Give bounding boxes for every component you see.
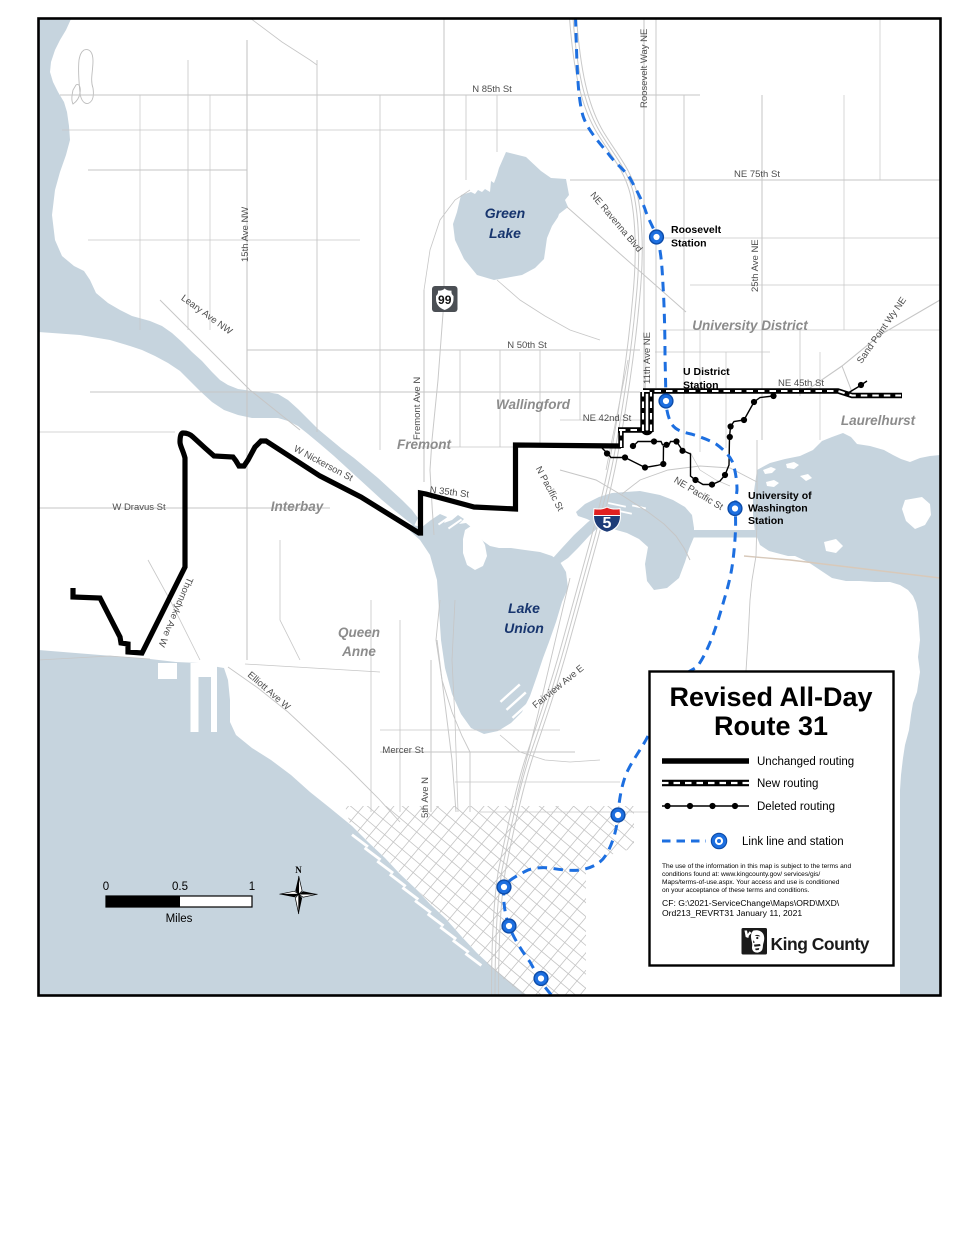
svg-text:Roosevelt Way NE: Roosevelt Way NE bbox=[639, 29, 650, 108]
svg-text:Unchanged routing: Unchanged routing bbox=[757, 756, 854, 768]
svg-text:Ord213_REVRT31 January 11, 2: Ord213_REVRT31 January 11, 2021 bbox=[662, 908, 802, 918]
svg-text:King County: King County bbox=[771, 934, 870, 954]
svg-text:NE 75th St: NE 75th St bbox=[734, 169, 780, 180]
svg-text:Station: Station bbox=[748, 515, 784, 527]
svg-text:NE 45th St: NE 45th St bbox=[778, 378, 824, 389]
svg-text:Station: Station bbox=[671, 238, 707, 250]
svg-text:5: 5 bbox=[603, 515, 612, 532]
svg-text:1: 1 bbox=[249, 881, 255, 893]
svg-text:The use of the information in: The use of the information in this map i… bbox=[662, 863, 851, 870]
svg-text:11th Ave NE: 11th Ave NE bbox=[642, 332, 653, 384]
svg-text:Link line and station: Link line and station bbox=[742, 836, 844, 848]
svg-text:NE 42nd St: NE 42nd St bbox=[583, 413, 632, 424]
svg-text:N 85th St: N 85th St bbox=[472, 84, 512, 95]
svg-text:0.5: 0.5 bbox=[172, 881, 188, 893]
svg-text:99: 99 bbox=[438, 293, 452, 307]
svg-text:New routing: New routing bbox=[757, 778, 818, 790]
svg-text:Queen: Queen bbox=[338, 625, 380, 640]
svg-text:Roosevelt: Roosevelt bbox=[671, 224, 722, 236]
svg-text:Station: Station bbox=[683, 380, 719, 392]
svg-text:CF: G:\2021-ServiceChange\Map: CF: G:\2021-ServiceChange\Maps\ORD\MXD\ bbox=[662, 898, 840, 908]
svg-text:Laurelhurst: Laurelhurst bbox=[841, 413, 916, 428]
svg-text:conditions found at: www.king: conditions found at: www.kingcounty.gov/… bbox=[662, 871, 820, 878]
svg-text:on your acceptance of these te: on your acceptance of these terms and co… bbox=[662, 887, 810, 894]
svg-text:Miles: Miles bbox=[166, 913, 193, 925]
svg-text:5th Ave N: 5th Ave N bbox=[420, 777, 431, 818]
svg-text:Lake: Lake bbox=[508, 600, 540, 616]
svg-text:N 50th St: N 50th St bbox=[507, 340, 547, 351]
svg-text:Fremont: Fremont bbox=[397, 437, 452, 452]
svg-text:N: N bbox=[295, 865, 302, 875]
svg-text:University District: University District bbox=[692, 318, 808, 333]
svg-text:Green: Green bbox=[485, 205, 525, 221]
svg-text:0: 0 bbox=[103, 881, 109, 893]
svg-text:Washington: Washington bbox=[748, 503, 808, 515]
svg-text:Union: Union bbox=[504, 620, 544, 636]
svg-text:Route 31: Route 31 bbox=[714, 711, 828, 741]
svg-text:Mercer St: Mercer St bbox=[382, 745, 424, 756]
svg-text:Maps/terms-of-use.aspx. Your a: Maps/terms-of-use.aspx. Your access and … bbox=[662, 879, 840, 886]
svg-text:Interbay: Interbay bbox=[271, 499, 325, 514]
svg-text:Lake: Lake bbox=[489, 225, 521, 241]
svg-text:U District: U District bbox=[683, 366, 730, 378]
svg-text:Revised All-Day: Revised All-Day bbox=[669, 682, 872, 712]
svg-text:15th Ave NW: 15th Ave NW bbox=[240, 207, 251, 262]
svg-text:Fremont Ave N: Fremont Ave N bbox=[412, 377, 423, 440]
svg-text:Wallingford: Wallingford bbox=[496, 397, 571, 412]
svg-text:25th Ave NE: 25th Ave NE bbox=[750, 239, 761, 292]
svg-text:Deleted routing: Deleted routing bbox=[757, 801, 835, 813]
svg-text:W Dravus St: W Dravus St bbox=[112, 502, 166, 513]
svg-text:Anne: Anne bbox=[341, 644, 376, 659]
svg-text:University of: University of bbox=[748, 490, 812, 502]
